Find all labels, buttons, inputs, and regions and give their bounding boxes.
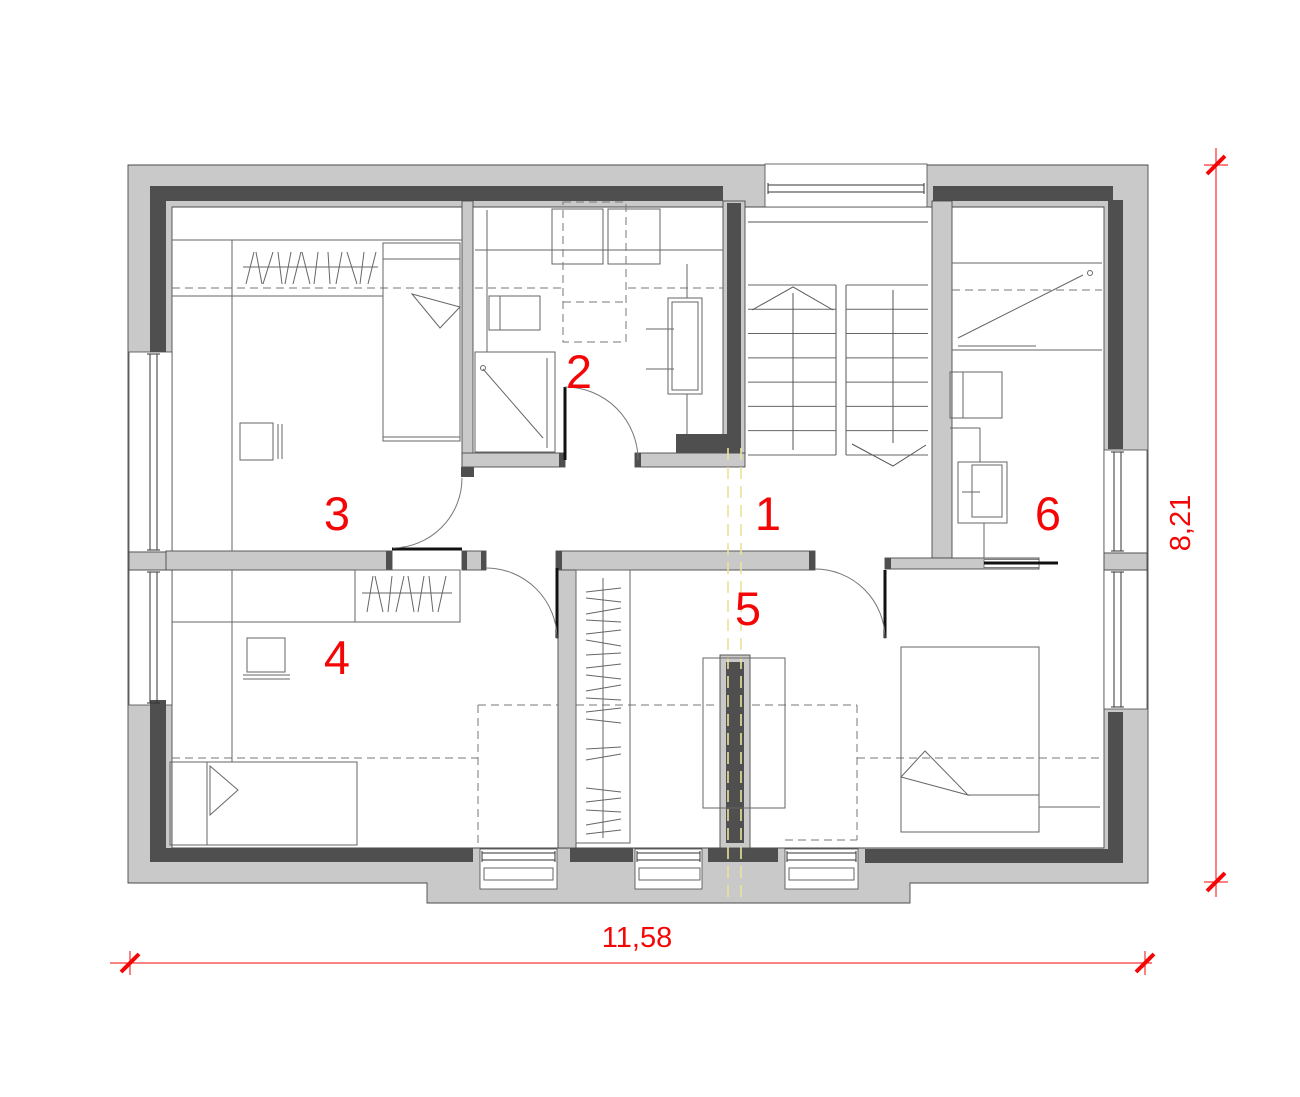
room-4-door-swing	[486, 568, 557, 639]
room-label-4: 4	[324, 631, 350, 684]
room-label-5: 5	[735, 582, 761, 635]
dimension-width-label: 11,58	[602, 922, 672, 954]
room-3-door-swing	[393, 478, 462, 548]
shower	[475, 352, 555, 452]
windows	[129, 164, 1147, 889]
staircase	[748, 222, 928, 466]
bottom-window-middle	[635, 849, 702, 889]
dimension-right: 8,21	[1165, 148, 1228, 897]
bottom-window-left	[480, 849, 557, 889]
toilet	[950, 372, 1002, 418]
room-6-bathroom	[950, 263, 1102, 558]
right-window-upper	[1104, 450, 1147, 553]
wardrobe-hangers	[367, 576, 446, 612]
room-label-1: 1	[755, 487, 781, 540]
desk	[247, 638, 285, 672]
pillow	[210, 766, 238, 815]
room-label-3: 3	[324, 487, 350, 540]
desk	[240, 423, 273, 460]
radiator	[668, 298, 702, 394]
floor-plan-drawing: 11,58 8,21 1 2 3 4 5 6	[0, 0, 1300, 1097]
room-5-door-swing	[815, 569, 885, 639]
room-4-bedroom	[170, 570, 460, 845]
floor-plan-page: 11,58 8,21 1 2 3 4 5 6	[0, 0, 1300, 1097]
dimension-height-label: 8,21	[1165, 495, 1197, 551]
right-window-lower	[1104, 570, 1147, 709]
washing-machine	[552, 209, 603, 264]
room-label-6: 6	[1035, 487, 1061, 540]
toilet	[489, 296, 540, 330]
roof-window-outline	[563, 202, 626, 342]
room-5-bedroom	[576, 570, 1100, 843]
double-bed	[901, 647, 1039, 832]
pillow	[412, 294, 460, 328]
sloped-ceiling-line	[958, 275, 1083, 338]
dimension-bottom: 11,58	[110, 922, 1154, 975]
dryer	[608, 209, 660, 264]
room-2-bathroom	[475, 202, 723, 452]
bottom-window-right	[785, 849, 858, 889]
room-label-2: 2	[566, 345, 592, 398]
wardrobe-hangers	[246, 252, 376, 284]
room-3-bedroom	[172, 240, 462, 551]
bed	[383, 243, 460, 441]
wardrobe	[355, 570, 460, 622]
bed	[170, 762, 357, 845]
